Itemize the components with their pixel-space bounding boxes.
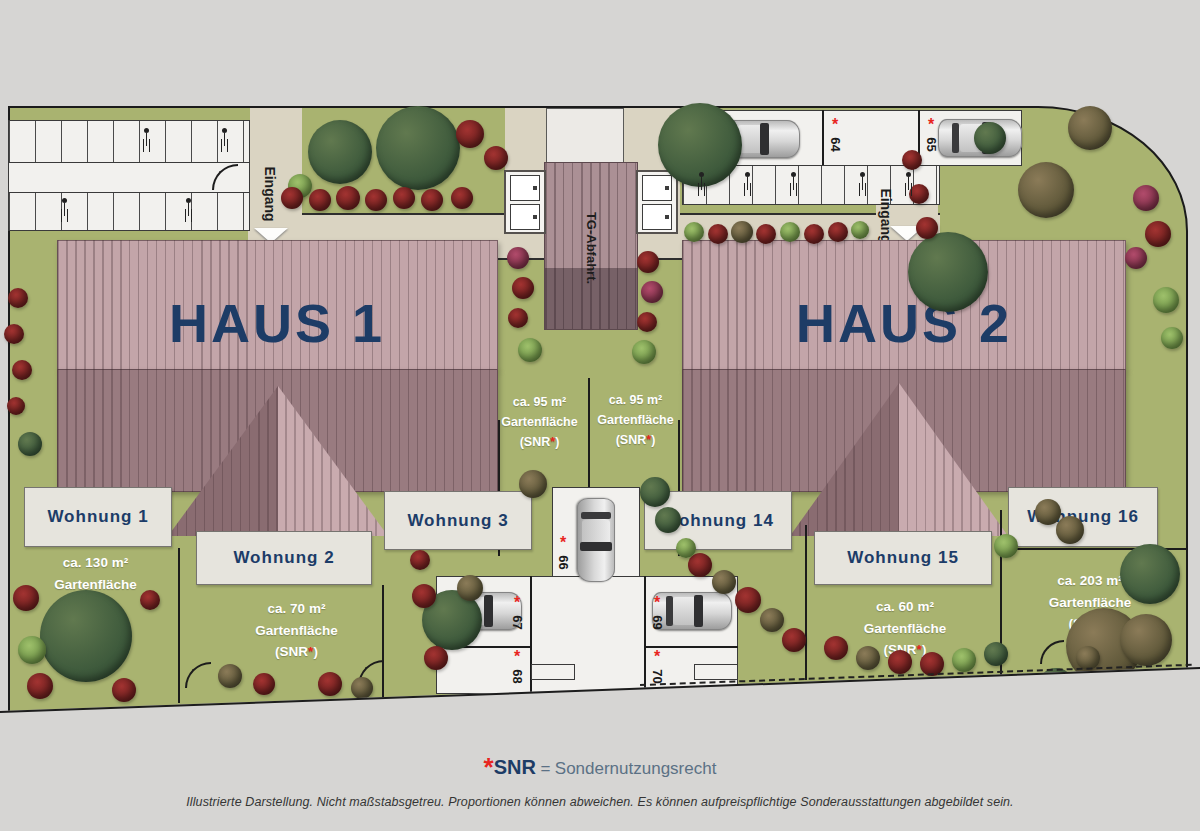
tree bbox=[1120, 544, 1180, 604]
bush bbox=[424, 646, 448, 670]
utility-shed-left bbox=[504, 170, 546, 234]
tree bbox=[218, 664, 242, 688]
step-notch bbox=[694, 664, 738, 680]
bicycle-parking-icon bbox=[787, 172, 799, 192]
bush bbox=[1125, 247, 1147, 269]
parking-space-67: *67 bbox=[510, 598, 524, 630]
tree bbox=[1056, 516, 1084, 544]
tree bbox=[1018, 162, 1074, 218]
tree bbox=[1068, 106, 1112, 150]
parking-space-69: *69 bbox=[650, 598, 664, 630]
tg-ramp-label: TG-Abfahrt. bbox=[584, 212, 599, 284]
tg-driveway bbox=[546, 108, 624, 166]
bush bbox=[632, 340, 656, 364]
stall-divider bbox=[644, 576, 646, 694]
tree bbox=[1120, 614, 1172, 666]
bush bbox=[916, 217, 938, 239]
haus2-gable bbox=[790, 383, 1008, 536]
bush bbox=[637, 312, 657, 332]
bush bbox=[994, 534, 1018, 558]
parking-space-66: *66 bbox=[556, 538, 570, 570]
tree bbox=[351, 677, 373, 699]
tree bbox=[519, 470, 547, 498]
tree bbox=[974, 122, 1006, 154]
step-notch bbox=[531, 664, 575, 680]
bush bbox=[676, 538, 696, 558]
bush bbox=[451, 187, 473, 209]
bush bbox=[508, 308, 528, 328]
bush bbox=[309, 189, 331, 211]
bicycle-parking-icon bbox=[140, 128, 152, 148]
bush bbox=[410, 550, 430, 570]
bush bbox=[851, 221, 869, 239]
bush bbox=[456, 120, 484, 148]
bush bbox=[828, 222, 848, 242]
tree bbox=[640, 477, 670, 507]
bush bbox=[1145, 221, 1171, 247]
haus1-gable bbox=[168, 386, 388, 536]
bush bbox=[518, 338, 542, 362]
terrace-wohnung-16: Wohnung 16 bbox=[1008, 487, 1158, 547]
terrace-wohnung-1: Wohnung 1 bbox=[24, 487, 172, 547]
bicycle-parking-icon bbox=[58, 198, 70, 218]
bicycle-parking-icon bbox=[741, 172, 753, 192]
bush bbox=[1153, 287, 1179, 313]
bush bbox=[365, 189, 387, 211]
tree bbox=[655, 507, 681, 533]
tree bbox=[712, 570, 736, 594]
bush bbox=[253, 673, 275, 695]
bush bbox=[824, 636, 848, 660]
parking-space-64: *64 bbox=[828, 120, 842, 152]
bush bbox=[804, 224, 824, 244]
bush bbox=[1161, 327, 1183, 349]
utility-shed-right bbox=[636, 170, 678, 234]
tree bbox=[308, 120, 372, 184]
garden-fence bbox=[805, 525, 807, 680]
haus1-label: HAUS 1 bbox=[87, 296, 467, 350]
terrace-wohnung-15: Wohnung 15 bbox=[814, 531, 992, 585]
bush bbox=[336, 186, 360, 210]
bike-parking-row-1 bbox=[8, 120, 250, 163]
bush bbox=[281, 187, 303, 209]
bush bbox=[952, 648, 976, 672]
tree bbox=[40, 590, 132, 682]
bush bbox=[318, 672, 342, 696]
bush bbox=[12, 360, 32, 380]
tree bbox=[731, 221, 753, 243]
stall-divider bbox=[822, 110, 824, 166]
terrace-wohnung-2: Wohnung 2 bbox=[196, 531, 372, 585]
bush bbox=[140, 590, 160, 610]
legend-equals: = bbox=[540, 759, 550, 778]
bush bbox=[27, 673, 53, 699]
legend-text: Sondernutzungsrecht bbox=[555, 759, 717, 778]
bush bbox=[13, 585, 39, 611]
bike-parking-row-2 bbox=[8, 192, 250, 231]
bush bbox=[888, 650, 912, 674]
bush bbox=[708, 224, 728, 244]
bush bbox=[735, 587, 761, 613]
bush bbox=[412, 584, 436, 608]
bush bbox=[4, 324, 24, 344]
bush bbox=[512, 277, 534, 299]
bush bbox=[421, 189, 443, 211]
bicycle-parking-icon bbox=[695, 172, 707, 192]
parking-space-68: *68 bbox=[510, 652, 524, 684]
terrace-wohnung-3: Wohnung 3 bbox=[384, 491, 532, 550]
site-plan: TG-Abfahrt. *63 *64 *65 Eingang Eingang … bbox=[0, 0, 1200, 831]
bush bbox=[1133, 185, 1159, 211]
bush bbox=[8, 288, 28, 308]
garden-label-2: ca. 70 m²Gartenfläche (SNR*) bbox=[224, 598, 369, 663]
garden-label-4: ca. 95 m²Gartenfläche (SNR*) bbox=[578, 390, 693, 450]
bicycle-parking-icon bbox=[856, 172, 868, 192]
parking-space-70: *70 bbox=[650, 652, 664, 684]
bush bbox=[782, 628, 806, 652]
parked-car bbox=[577, 498, 615, 582]
bush bbox=[780, 222, 800, 242]
tree bbox=[908, 232, 988, 312]
bush bbox=[484, 146, 508, 170]
entrance-left-label: Eingang bbox=[262, 166, 278, 221]
parking-space-65: *65 bbox=[924, 120, 938, 152]
bush bbox=[112, 678, 136, 702]
bicycle-parking-icon bbox=[218, 128, 230, 148]
haus2-label: HAUS 2 bbox=[714, 296, 1094, 350]
legend-abbr: SNR bbox=[494, 756, 536, 778]
tree bbox=[760, 608, 784, 632]
bush bbox=[7, 397, 25, 415]
bush bbox=[756, 224, 776, 244]
tree bbox=[457, 575, 483, 601]
tree bbox=[376, 106, 460, 190]
bush bbox=[641, 281, 663, 303]
tree bbox=[984, 642, 1008, 666]
bush bbox=[18, 636, 46, 664]
tree bbox=[18, 432, 42, 456]
bush bbox=[393, 187, 415, 209]
bush bbox=[688, 553, 712, 577]
tree bbox=[856, 646, 880, 670]
bicycle-parking-icon bbox=[902, 172, 914, 192]
bush bbox=[507, 247, 529, 269]
garden-fence bbox=[178, 548, 180, 703]
legend-asterisk: * bbox=[484, 752, 494, 782]
bush bbox=[902, 150, 922, 170]
bush bbox=[684, 222, 704, 242]
tree bbox=[1035, 499, 1061, 525]
bush bbox=[637, 251, 659, 273]
legend: *SNR = Sondernutzungsrecht bbox=[0, 752, 1200, 783]
bicycle-parking-icon bbox=[182, 198, 194, 218]
disclaimer-text: Illustrierte Darstellung. Nicht maßstabs… bbox=[0, 795, 1200, 809]
